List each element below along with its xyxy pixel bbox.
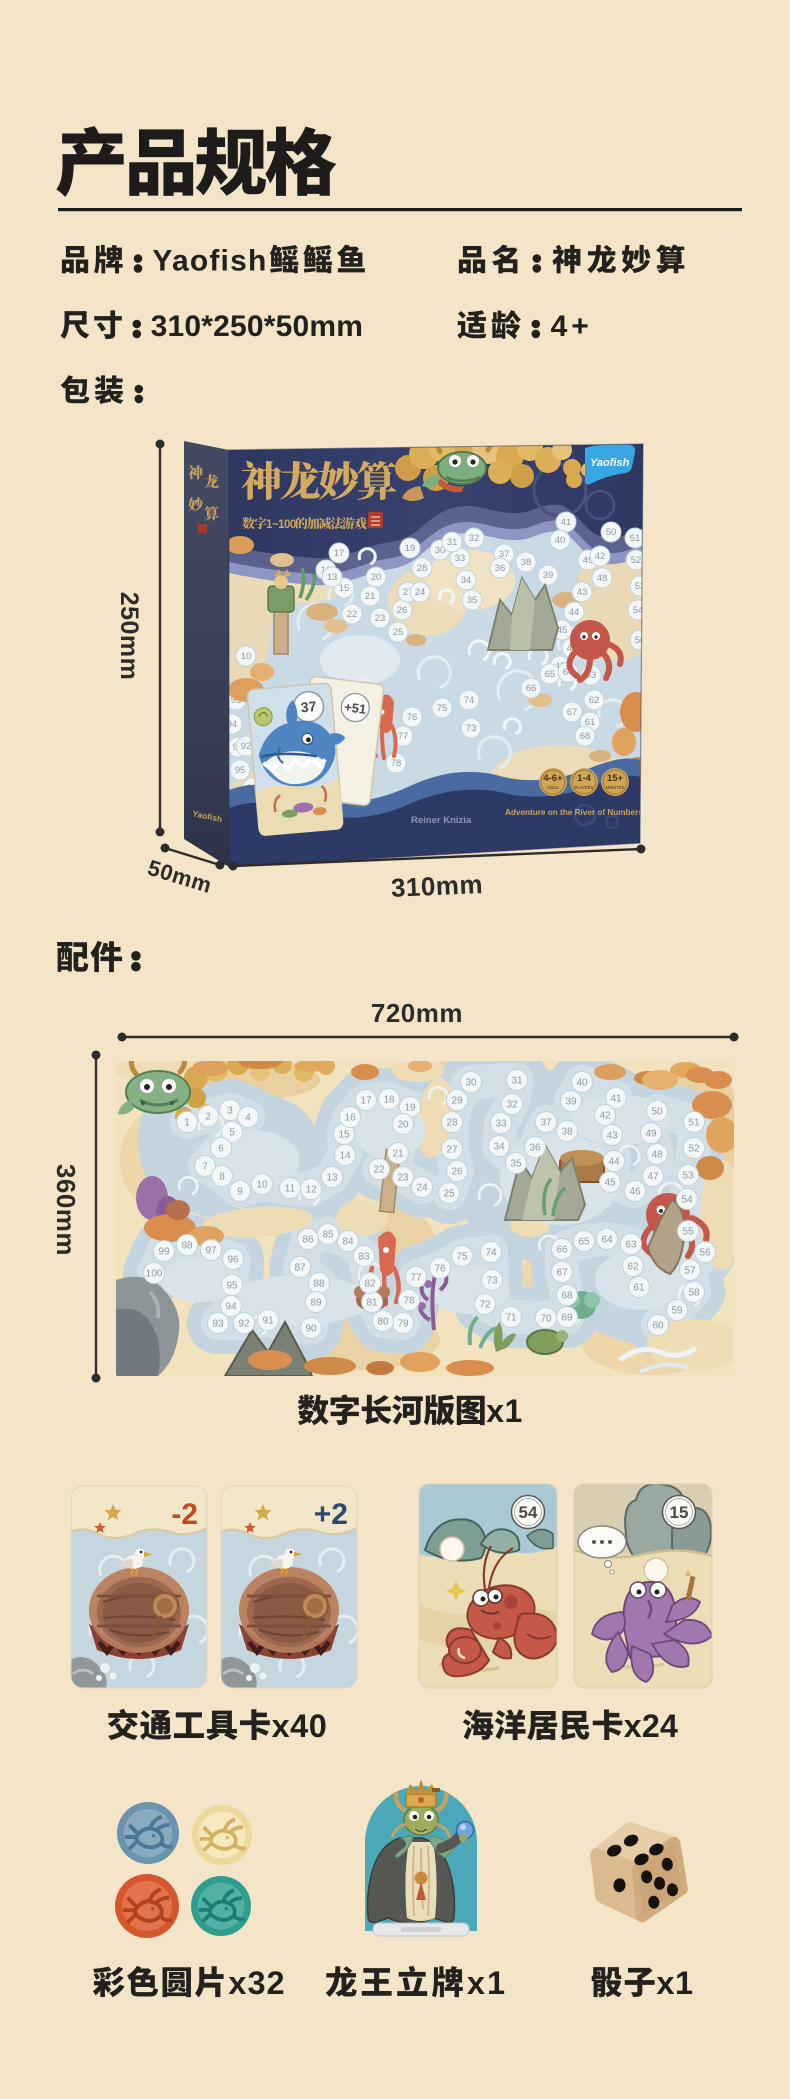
svg-text:22: 22 [347,609,358,620]
svg-text:2: 2 [205,1111,211,1122]
svg-text:x1: x1 [486,1393,523,1429]
svg-text:4+: 4+ [551,310,593,343]
svg-text:29: 29 [451,1095,463,1106]
svg-text:11: 11 [285,1183,296,1194]
svg-text:52: 52 [688,1143,700,1154]
svg-text:x1: x1 [656,1965,693,2001]
svg-text:33: 33 [455,553,466,564]
svg-text:25: 25 [393,627,404,638]
svg-text:36: 36 [495,563,506,574]
svg-text:38: 38 [561,1126,573,1137]
svg-text:51: 51 [688,1117,700,1128]
svg-text:52: 52 [631,555,642,566]
svg-text:26: 26 [397,605,408,616]
svg-text:26: 26 [451,1166,463,1177]
svg-text:34: 34 [493,1141,505,1152]
svg-text:x24: x24 [624,1708,678,1744]
svg-text:36: 36 [529,1142,541,1153]
svg-text:42: 42 [599,1110,611,1121]
svg-text:56: 56 [699,1247,711,1258]
svg-text:70: 70 [540,1313,552,1324]
svg-text:37: 37 [540,1117,552,1128]
svg-text:68: 68 [580,731,591,742]
svg-text:100: 100 [146,1268,163,1279]
svg-text:75: 75 [456,1251,468,1262]
svg-text:97: 97 [205,1245,217,1256]
svg-text:5: 5 [229,1127,235,1138]
svg-text:49: 49 [645,1128,657,1139]
svg-text:9: 9 [237,1186,243,1197]
svg-text:80: 80 [377,1316,389,1327]
svg-text:310*250*50mm: 310*250*50mm [151,310,364,343]
svg-text:55: 55 [682,1226,694,1237]
svg-text:87: 87 [294,1262,306,1273]
svg-text:43: 43 [577,587,588,598]
svg-text:39: 39 [565,1096,577,1107]
svg-text:25: 25 [443,1188,455,1199]
svg-text:250mm: 250mm [115,592,143,681]
svg-text:720mm: 720mm [371,998,463,1028]
svg-text:66: 66 [526,683,537,694]
svg-text:40: 40 [576,1077,588,1088]
svg-text:83: 83 [358,1251,370,1262]
svg-text:48: 48 [651,1149,663,1160]
svg-text:81: 81 [366,1297,378,1308]
svg-text:35: 35 [467,595,478,606]
svg-text:+2: +2 [314,1498,348,1531]
svg-text:16: 16 [344,1112,356,1123]
svg-text:20: 20 [371,572,382,583]
svg-text:96: 96 [227,1254,239,1265]
svg-text:51: 51 [630,533,641,544]
svg-text:41: 41 [610,1093,622,1104]
svg-text:90: 90 [305,1323,317,1334]
svg-text:54: 54 [519,1503,538,1522]
svg-text:1: 1 [184,1117,190,1128]
svg-text:71: 71 [505,1312,517,1323]
svg-text:13: 13 [326,1172,338,1183]
svg-text:58: 58 [688,1287,700,1298]
svg-text:17: 17 [360,1095,372,1106]
svg-text:48: 48 [597,573,608,584]
svg-text:6: 6 [218,1143,224,1154]
svg-text:Yaofish: Yaofish [590,457,630,469]
svg-text:93: 93 [212,1318,224,1329]
svg-text:45: 45 [604,1177,616,1188]
svg-text:84: 84 [342,1236,354,1247]
svg-text:22: 22 [373,1164,385,1175]
svg-text:65: 65 [545,669,556,680]
svg-text:50: 50 [606,527,617,538]
svg-text:67: 67 [567,707,578,718]
svg-text:63: 63 [625,1239,637,1250]
svg-text:38: 38 [521,557,532,568]
svg-text:19: 19 [405,543,416,554]
svg-text:64: 64 [601,1234,613,1245]
svg-text:78: 78 [403,1295,415,1306]
svg-text:4: 4 [245,1112,251,1123]
svg-text:Yaofish: Yaofish [152,245,267,278]
svg-text:68: 68 [561,1290,573,1301]
svg-text:94: 94 [225,1301,237,1312]
svg-text:88: 88 [313,1278,325,1289]
svg-text:66: 66 [556,1244,568,1255]
svg-text:73: 73 [466,723,477,734]
svg-text:1-4: 1-4 [577,773,591,784]
svg-text:17: 17 [334,548,345,559]
svg-text:39: 39 [543,570,554,581]
svg-text:x40: x40 [272,1708,328,1744]
svg-text:33: 33 [495,1118,507,1129]
svg-text:92: 92 [238,1318,250,1329]
svg-text:76: 76 [407,712,418,723]
svg-text:54: 54 [681,1194,693,1205]
svg-text:91: 91 [262,1315,274,1326]
svg-text:24: 24 [416,1182,428,1193]
svg-text:62: 62 [627,1261,639,1272]
svg-text:35: 35 [510,1158,522,1169]
svg-text:15: 15 [339,583,350,594]
svg-text:23: 23 [375,613,386,624]
svg-text:31: 31 [511,1075,523,1086]
svg-text:32: 32 [469,533,480,544]
svg-text:85: 85 [322,1229,334,1240]
svg-text:21: 21 [392,1148,404,1159]
svg-text:+51: +51 [343,699,367,717]
svg-text:57: 57 [684,1265,696,1276]
svg-text:98: 98 [181,1240,193,1251]
svg-text:43: 43 [606,1130,618,1141]
svg-text:78: 78 [391,758,402,769]
svg-text:44: 44 [608,1156,620,1167]
svg-text:61: 61 [633,1282,645,1293]
svg-text:77: 77 [398,731,409,742]
svg-text:60: 60 [652,1320,664,1331]
svg-text:62: 62 [589,695,600,706]
svg-text:15+: 15+ [607,773,624,784]
svg-text:95: 95 [226,1280,238,1291]
svg-text:10: 10 [241,651,252,662]
svg-text:50: 50 [651,1106,663,1117]
svg-text:310mm: 310mm [390,869,483,903]
svg-text:28: 28 [446,1117,458,1128]
svg-text:92: 92 [241,741,252,752]
svg-text:74: 74 [485,1247,497,1258]
svg-text:Adventure on the River of Numb: Adventure on the River of Numbers [505,808,643,817]
svg-text:14: 14 [339,1150,351,1161]
svg-text:69: 69 [561,1312,573,1323]
svg-text:x32: x32 [228,1965,285,2001]
svg-text:24: 24 [415,587,426,598]
svg-text:19: 19 [404,1102,416,1113]
svg-text:-2: -2 [171,1498,198,1531]
svg-text:99: 99 [158,1246,170,1257]
svg-text:46: 46 [629,1186,641,1197]
svg-text:21: 21 [365,591,376,602]
svg-text:86: 86 [302,1234,314,1245]
svg-text:AGES: AGES [547,785,559,790]
svg-text:Reiner Knizia: Reiner Knizia [411,815,472,826]
svg-text:82: 82 [364,1278,376,1289]
svg-text:PLAYERS: PLAYERS [574,785,593,790]
svg-text:8: 8 [219,1171,225,1182]
svg-text:59: 59 [671,1305,683,1316]
svg-text:76: 76 [434,1263,446,1274]
svg-text:42: 42 [595,551,606,562]
svg-text:37: 37 [300,698,317,715]
svg-text:40: 40 [555,535,566,546]
svg-text:34: 34 [461,575,472,586]
svg-text:72: 72 [479,1299,491,1310]
svg-text:x1: x1 [467,1965,507,2001]
svg-text:79: 79 [397,1318,409,1329]
svg-text:32: 32 [506,1099,518,1110]
svg-text:89: 89 [310,1297,322,1308]
svg-text:67: 67 [556,1267,568,1278]
svg-text:10: 10 [256,1179,268,1190]
svg-text:27: 27 [446,1144,458,1155]
svg-text:31: 31 [447,537,458,548]
svg-text:18: 18 [383,1094,395,1105]
svg-text:7: 7 [202,1161,208,1172]
svg-text:13: 13 [327,572,338,583]
svg-text:75: 75 [437,703,448,714]
svg-text:95: 95 [235,765,246,776]
svg-text:15: 15 [338,1129,350,1140]
svg-text:65: 65 [578,1236,590,1247]
svg-text:4-6+: 4-6+ [543,773,563,784]
svg-text:47: 47 [647,1171,659,1182]
svg-text:41: 41 [561,517,572,528]
svg-text:12: 12 [305,1184,317,1195]
svg-text:74: 74 [464,695,475,706]
svg-text:15: 15 [670,1503,689,1522]
svg-text:360mm: 360mm [51,1164,81,1256]
svg-text:MINUTES: MINUTES [606,785,625,790]
svg-text:53: 53 [682,1170,694,1181]
svg-text:23: 23 [397,1172,409,1183]
svg-text:73: 73 [486,1275,498,1286]
svg-text:1~100: 1~100 [266,519,296,531]
svg-text:77: 77 [410,1272,422,1283]
svg-text:20: 20 [397,1119,409,1130]
svg-text:30: 30 [465,1077,477,1088]
svg-text:3: 3 [227,1105,233,1116]
svg-text:44: 44 [569,607,580,618]
svg-text:28: 28 [417,563,428,574]
